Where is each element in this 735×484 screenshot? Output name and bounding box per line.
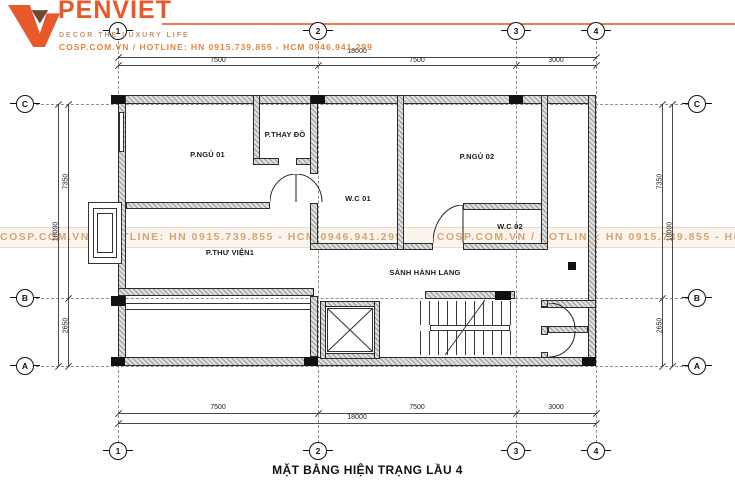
dim-label-right-total: 10000: [667, 212, 674, 252]
door-swing: [296, 174, 323, 208]
dim-label-right-seg1: 7350: [657, 162, 664, 202]
wall-segment: [541, 326, 548, 335]
header-contact-line: COSP.COM.VN / HOTLINE: HN 0915.739.855 -…: [59, 42, 373, 52]
grid-bubble-right-A: A: [688, 357, 706, 375]
grid-bubble-right-C: C: [688, 95, 706, 113]
grid-bubble-top-4: 4: [587, 22, 605, 40]
brand-name: PENVIET: [58, 0, 172, 25]
grid-label: 2: [316, 446, 321, 456]
column: [495, 291, 511, 300]
dim-line: [118, 65, 596, 66]
dim-label-top-seg1: 7500: [183, 57, 253, 64]
brand-tagline: DECOR THE LUXURY LIFE: [59, 32, 190, 39]
wall-segment: [118, 288, 314, 296]
grid-bubble-bottom-4: 4: [587, 442, 605, 460]
header-accent-line: [162, 23, 735, 25]
dim-label-top-seg2: 7500: [382, 57, 452, 64]
grid-label: 1: [116, 446, 121, 456]
dim-label-bottom-seg3: 3000: [521, 404, 591, 411]
column: [111, 357, 125, 366]
grid-bubble-right-B: B: [688, 289, 706, 307]
room-label-library: P.THƯ VIỆN1: [185, 248, 275, 257]
grid-label: 4: [594, 26, 599, 36]
elevator-wall: [320, 301, 326, 359]
column: [509, 95, 523, 104]
bay-window: [97, 213, 113, 253]
door-swing: [433, 205, 464, 249]
room-label-dressing: P.THAY ĐỒ: [245, 130, 325, 139]
dim-label-right-seg2: 2650: [657, 306, 664, 346]
grid-bubble-left-C: C: [16, 95, 34, 113]
grid-label: B: [22, 293, 28, 303]
watermark-text: COSP.COM.VN / HOTLINE: HN 0915.739.855 -…: [0, 231, 403, 243]
grid-label: A: [694, 361, 700, 371]
grid-label: C: [22, 99, 28, 109]
window: [119, 112, 124, 152]
column: [582, 357, 596, 366]
grid-bubble-left-B: B: [16, 289, 34, 307]
grid-line-4: [596, 41, 597, 443]
dim-label-bottom-seg1: 7500: [183, 404, 253, 411]
column: [304, 357, 318, 366]
grid-label: 3: [514, 446, 519, 456]
dim-label-left-seg1: 7350: [63, 162, 70, 202]
grid-label: A: [22, 361, 28, 371]
elevator-wall: [374, 301, 380, 359]
wall-segment: [541, 300, 548, 307]
stairs-break-line: [440, 295, 490, 362]
wall-segment: [541, 352, 548, 358]
room-label-wc2: W.C 02: [480, 222, 540, 231]
drawing-title: MẶT BẰNG HIỆN TRẠNG LẦU 4: [0, 463, 735, 477]
grid-label: 4: [594, 446, 599, 456]
door-swing: [549, 331, 576, 363]
column: [111, 296, 125, 306]
wall-segment: [397, 95, 404, 250]
column: [111, 95, 125, 104]
wall-segment: [588, 95, 596, 366]
wall-segment: [541, 95, 548, 250]
room-label-hallway: SẢNH HÀNH LANG: [375, 268, 475, 277]
grid-bubble-bottom-1: 1: [109, 442, 127, 460]
wall-segment: [463, 243, 548, 250]
dim-label-left-total: 10000: [53, 212, 60, 252]
column: [568, 262, 576, 270]
grid-bubble-bottom-3: 3: [507, 442, 525, 460]
grid-bubble-bottom-2: 2: [309, 442, 327, 460]
room-label-wc1: W.C 01: [328, 194, 388, 203]
wall-segment: [310, 243, 433, 250]
door-swing: [270, 174, 297, 208]
grid-bubble-top-2: 2: [309, 22, 327, 40]
elevator-cross-icon: [327, 308, 373, 357]
wall-segment: [253, 158, 279, 165]
dim-label-bottom-total: 18000: [322, 414, 392, 421]
grid-bubble-top-3: 3: [507, 22, 525, 40]
dim-label-bottom-seg2: 7500: [382, 404, 452, 411]
grid-label: 2: [316, 26, 321, 36]
dim-label-top-seg3: 3000: [521, 57, 591, 64]
room-label-bedroom1: P.NGỦ 01: [160, 150, 255, 159]
penviet-logo-icon: [8, 3, 60, 54]
grid-bubble-left-A: A: [16, 357, 34, 375]
elevator-wall: [320, 301, 380, 307]
dim-label-left-seg2: 2650: [63, 306, 70, 346]
grid-line-A: [36, 366, 688, 367]
watermark-text: COSP.COM.VN / HOTLINE: HN 0915.739.855 -…: [437, 231, 735, 243]
room-label-bedroom2: P.NGỦ 02: [437, 152, 517, 161]
column: [311, 95, 325, 104]
wall-segment: [126, 202, 270, 209]
wall-segment: [310, 296, 318, 357]
balcony-railing: [126, 303, 310, 310]
drawing-sheet: PENVIET DECOR THE LUXURY LIFE COSP.COM.V…: [0, 0, 735, 484]
grid-label: B: [694, 293, 700, 303]
wall-segment: [463, 203, 548, 210]
wall-segment: [118, 95, 596, 104]
grid-label: C: [694, 99, 700, 109]
grid-label: 3: [514, 26, 519, 36]
dim-line: [118, 423, 596, 424]
